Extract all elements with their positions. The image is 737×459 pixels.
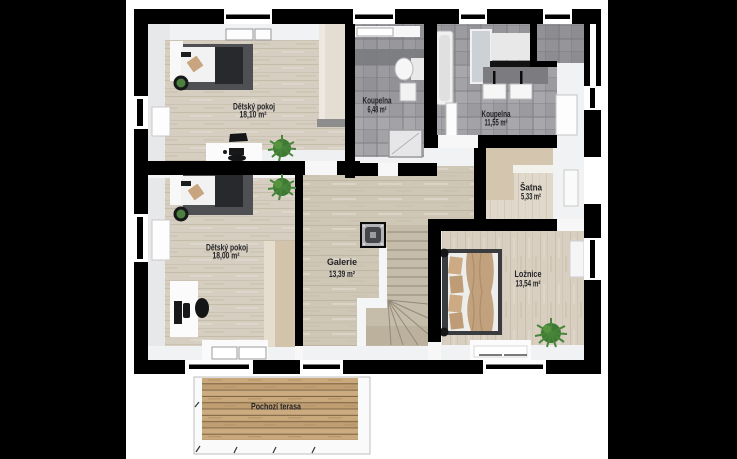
svg-text:18,00 m²: 18,00 m²: [213, 251, 240, 261]
svg-text:5,33 m²: 5,33 m²: [521, 192, 541, 202]
svg-text:18,10 m²: 18,10 m²: [240, 110, 267, 120]
svg-text:Pochozí terasa: Pochozí terasa: [251, 402, 302, 412]
svg-text:11,55 m²: 11,55 m²: [485, 118, 508, 128]
svg-text:Ložnice: Ložnice: [515, 269, 542, 279]
svg-text:13,39 m²: 13,39 m²: [329, 269, 355, 279]
svg-text:6,48 m²: 6,48 m²: [368, 105, 387, 115]
svg-text:13,54 m²: 13,54 m²: [516, 279, 541, 289]
svg-text:Galerie: Galerie: [327, 257, 357, 267]
